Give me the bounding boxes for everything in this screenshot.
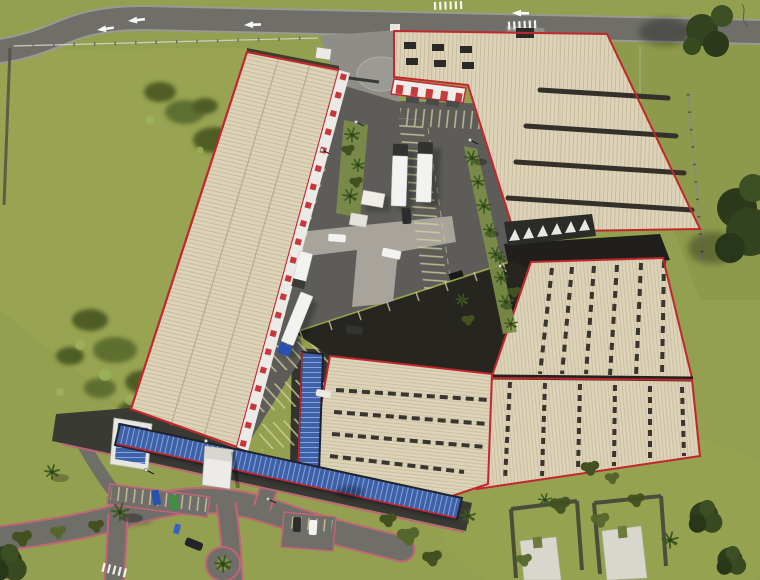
car-dark-bay bbox=[293, 517, 302, 532]
car-dark-plaza bbox=[401, 208, 411, 225]
truck-cab bbox=[393, 144, 408, 157]
truck-trailer bbox=[416, 154, 433, 202]
truck-trailer bbox=[391, 156, 408, 206]
gate-house bbox=[315, 47, 331, 60]
tree-shadow bbox=[639, 18, 691, 46]
aerial-scene: Top-down aerial rendering of a logistics… bbox=[0, 0, 760, 580]
semi-truck-1 bbox=[391, 144, 416, 211]
solar-carport-strip bbox=[298, 352, 323, 472]
truck-cab bbox=[418, 142, 433, 155]
bus-shelter bbox=[390, 24, 400, 31]
roof-notch bbox=[533, 537, 543, 549]
semi-truck-2 bbox=[416, 142, 441, 207]
guard-kiosk bbox=[349, 213, 368, 228]
utility-building-b bbox=[602, 526, 647, 580]
roof-notch bbox=[617, 526, 627, 539]
car-white-bay bbox=[309, 520, 318, 535]
car-white-plaza bbox=[328, 233, 347, 242]
aerial-render: Top-down aerial rendering of a logistics… bbox=[0, 0, 760, 580]
